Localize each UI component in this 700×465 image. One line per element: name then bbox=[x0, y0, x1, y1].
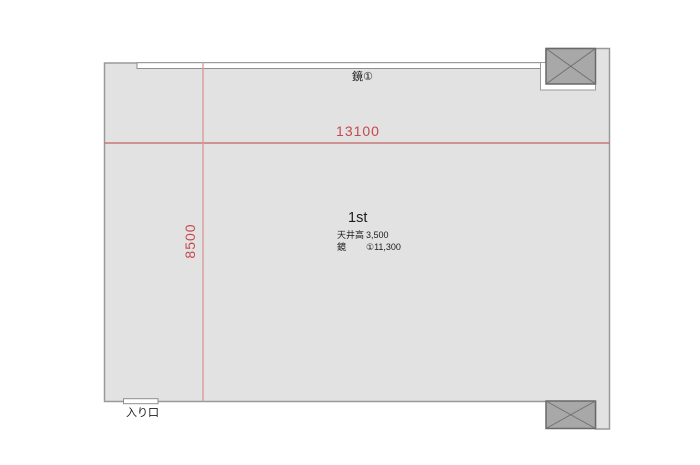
width-dimension-label: 13100 bbox=[336, 123, 380, 139]
top-right-column bbox=[546, 49, 596, 85]
depth-dimension-label: 8500 bbox=[182, 223, 198, 258]
ceiling-height-value: 3,500 bbox=[366, 230, 389, 240]
ceiling-height-label: 天井高 bbox=[337, 229, 364, 240]
mirror-strip bbox=[137, 63, 541, 69]
mirror-spec-value: ①11,300 bbox=[366, 242, 401, 252]
entrance-door bbox=[124, 399, 159, 404]
floor-plan-canvas: 13100 8500 鏡① 1st 天井高 3,500 鏡 ①11,300 入り… bbox=[0, 0, 700, 465]
mirror-label: 鏡① bbox=[352, 69, 373, 83]
entrance-label: 入り口 bbox=[126, 406, 159, 419]
floor-plan-drawing: 13100 8500 鏡① 1st 天井高 3,500 鏡 ①11,300 入り… bbox=[0, 0, 700, 465]
room-name: 1st bbox=[348, 210, 367, 226]
mirror-spec-label: 鏡 bbox=[337, 241, 346, 252]
bottom-right-column bbox=[546, 401, 596, 429]
